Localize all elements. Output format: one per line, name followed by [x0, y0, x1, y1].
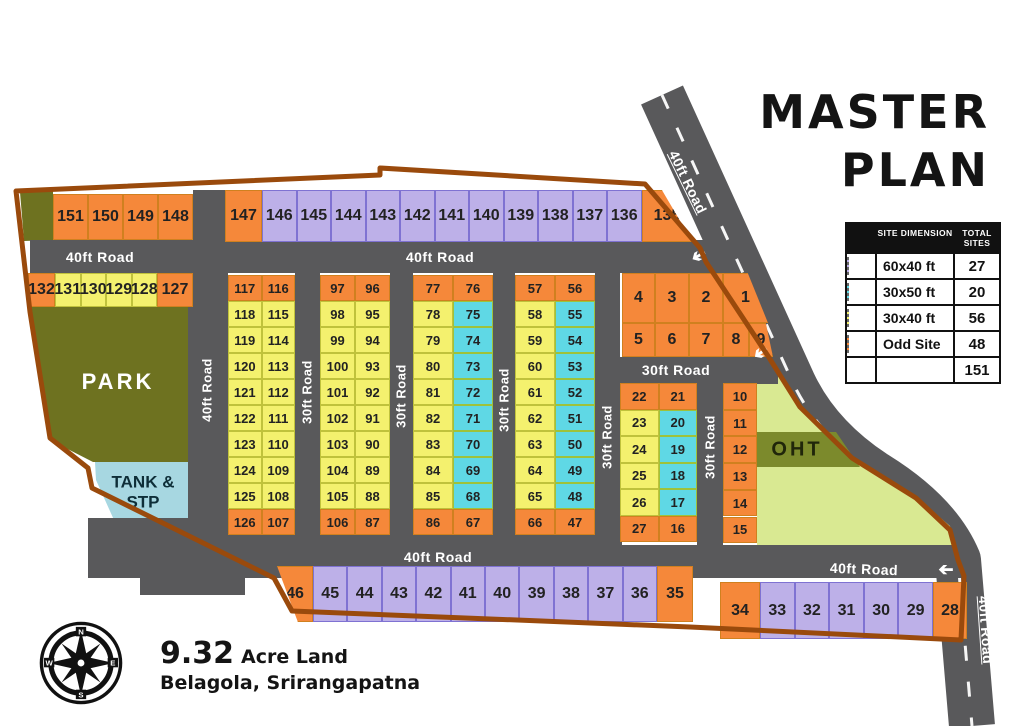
road-label: 40ft Road [976, 595, 997, 664]
road-label: 30ft Road [642, 362, 710, 378]
tank-label-line2: STP [112, 492, 175, 512]
road-label: 30ft Road [394, 364, 409, 428]
oht-label: OHT [771, 439, 822, 462]
park-label: PARK [82, 369, 155, 395]
road-label: 40ft Road [404, 549, 472, 565]
tank-stp-label: TANK & STP [112, 472, 175, 511]
road-label: 30ft Road [300, 360, 315, 424]
road-label: 30ft Road [600, 405, 615, 469]
road-label: 40ft Road [200, 358, 215, 422]
road-arrow-mid: ➔ [750, 341, 773, 364]
road-label: 30ft Road [497, 368, 512, 432]
road-arrow-top: ➔ [688, 244, 710, 267]
master-plan-canvas: 1511501491481471461451441431421411401391… [0, 0, 1024, 726]
road-label: 40ft Road [666, 148, 710, 216]
road-label: 40ft Road [406, 249, 474, 265]
road-label: 40ft Road [66, 249, 134, 265]
labels-layer: PARK TANK & STP OHT ➔ ➔ ➔ 40ft Road40ft … [0, 0, 1024, 726]
road-label: 30ft Road [703, 415, 718, 479]
road-arrow-bottom: ➔ [938, 561, 953, 579]
tank-label-line1: TANK & [112, 472, 175, 492]
road-label: 40ft Road [830, 560, 899, 578]
